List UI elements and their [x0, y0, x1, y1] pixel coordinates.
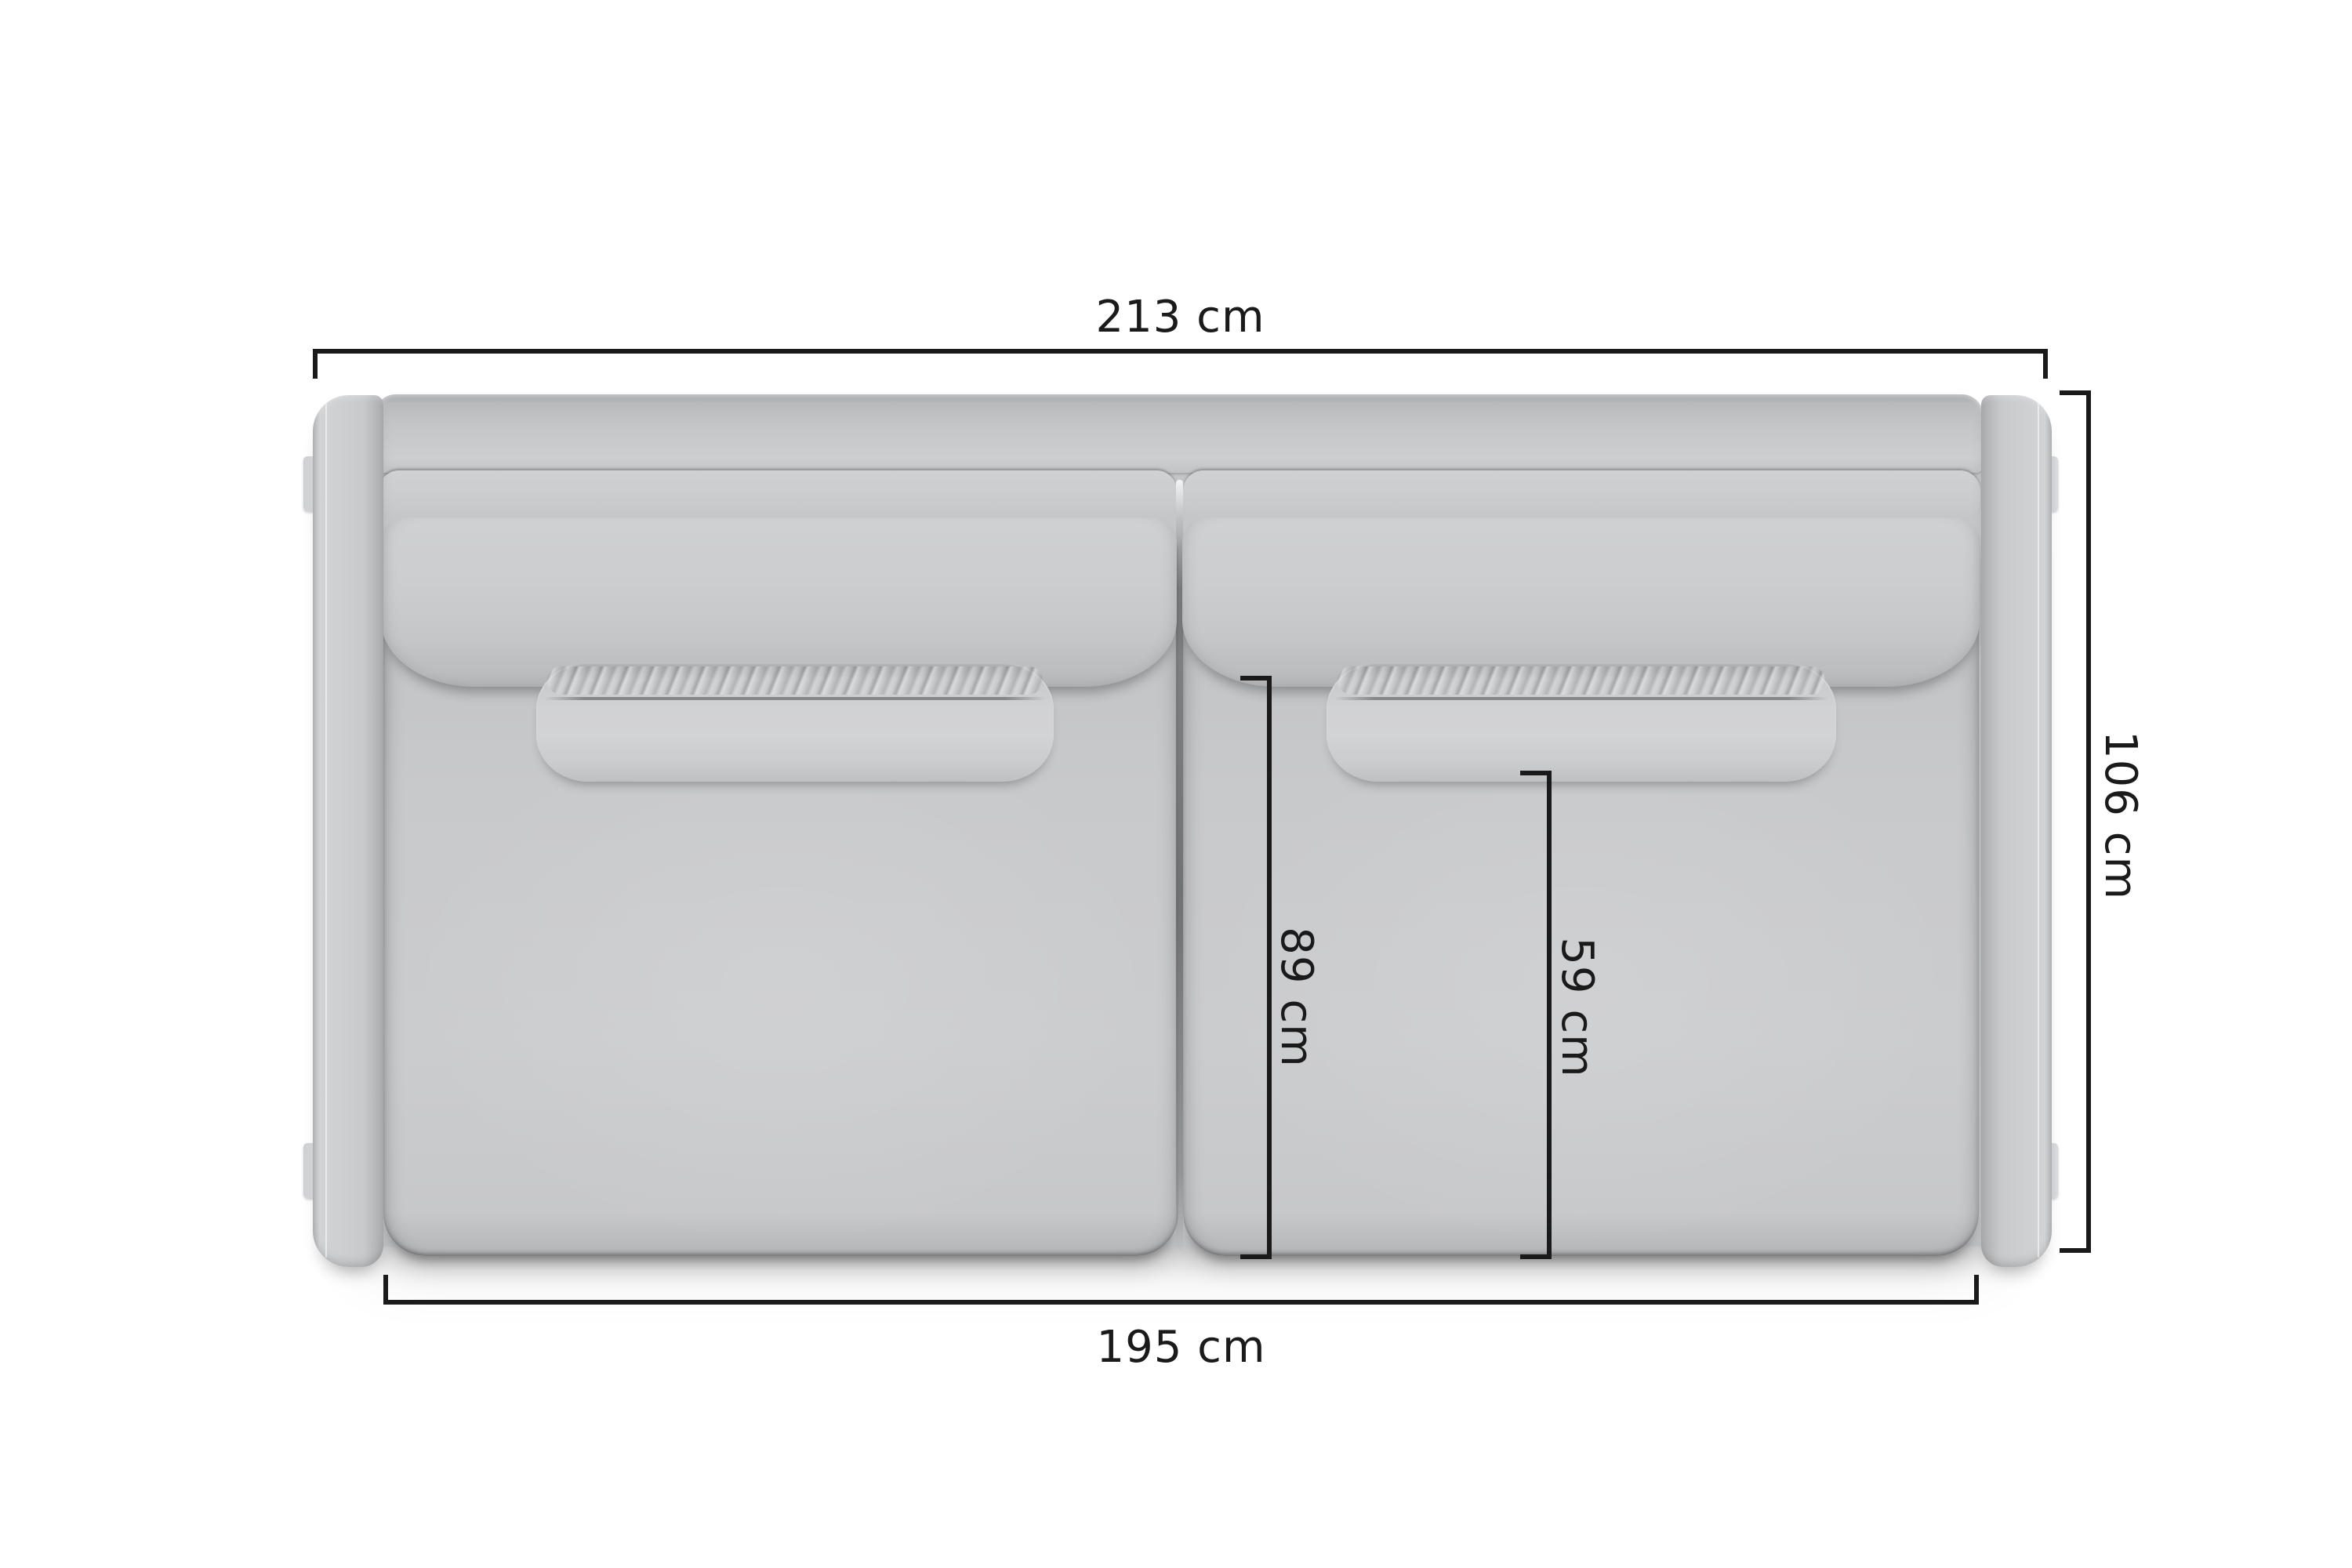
dimension-label-seat-depth: 89 cm: [1272, 927, 1320, 1067]
sofa-headrest-pillow-left: [536, 662, 1054, 782]
sofa-back-cushion-top-right: [1183, 470, 1980, 522]
dimension-line-pillow-to-front: [1520, 771, 1552, 1259]
sofa-backrest-frame: [374, 394, 1984, 473]
sofa-back-bolster-left: [381, 517, 1177, 687]
diagram-canvas: 213 cm 195 cm 106 cm 89 cm 59 cm: [0, 0, 2352, 1568]
dimension-line-overall-depth: [2060, 390, 2091, 1253]
sofa-back-cushion-top-left: [379, 470, 1177, 522]
sofa-armrest-right: [1981, 395, 2052, 1267]
dimension-label-pillow-to-front: 59 cm: [1552, 937, 1601, 1077]
dimension-label-overall-depth: 106 cm: [2096, 731, 2144, 900]
dimension-label-inner-width: 195 cm: [383, 1323, 1979, 1372]
sofa-headrest-pillow-right: [1327, 662, 1836, 782]
sofa-back-bolster-right: [1182, 517, 1980, 687]
sofa-armrest-left: [313, 395, 383, 1267]
dimension-line-overall-width: [313, 349, 2048, 379]
dimension-line-inner-width: [383, 1275, 1979, 1305]
dimension-line-seat-depth: [1240, 676, 1272, 1259]
dimension-label-overall-width: 213 cm: [313, 293, 2048, 342]
